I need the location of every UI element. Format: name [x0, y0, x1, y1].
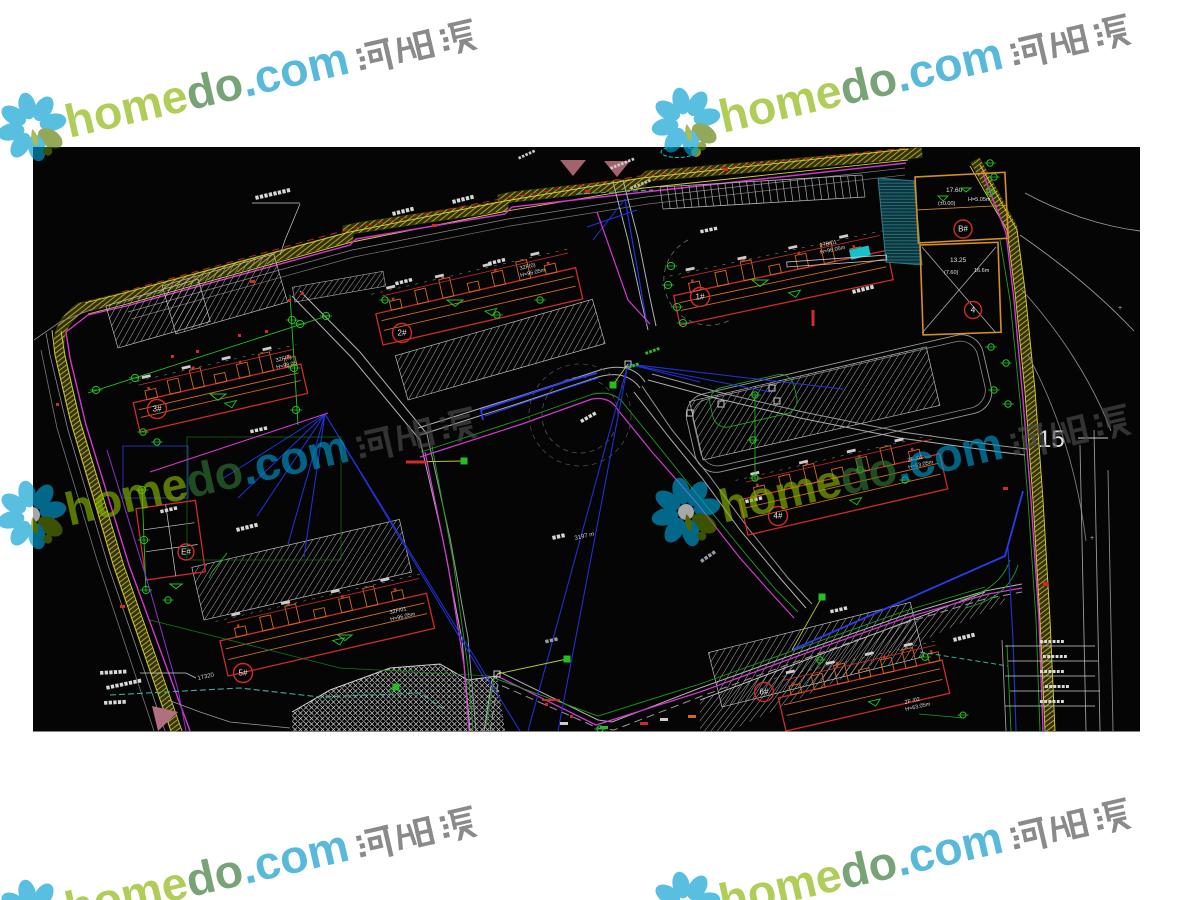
svg-text:1#: 1#: [696, 293, 705, 302]
svg-text:6#: 6#: [760, 688, 769, 697]
svg-text:13.25: 13.25: [950, 257, 967, 264]
svg-text:+: +: [1090, 535, 1094, 542]
svg-text:16.6m: 16.6m: [974, 268, 990, 274]
svg-text:(7.60): (7.60): [944, 270, 959, 276]
svg-text:2#: 2#: [398, 329, 407, 338]
svg-text:B#: B#: [958, 225, 968, 234]
svg-text:+: +: [1118, 305, 1122, 312]
svg-text:17.60: 17.60: [946, 187, 963, 194]
svg-text:4: 4: [971, 306, 976, 315]
svg-text:(±0.00): (±0.00): [938, 201, 956, 207]
svg-text:3#: 3#: [153, 405, 162, 414]
svg-text:H=5.05m: H=5.05m: [968, 197, 991, 203]
svg-text:5#: 5#: [239, 669, 248, 678]
svg-text:E#: E#: [181, 548, 191, 557]
